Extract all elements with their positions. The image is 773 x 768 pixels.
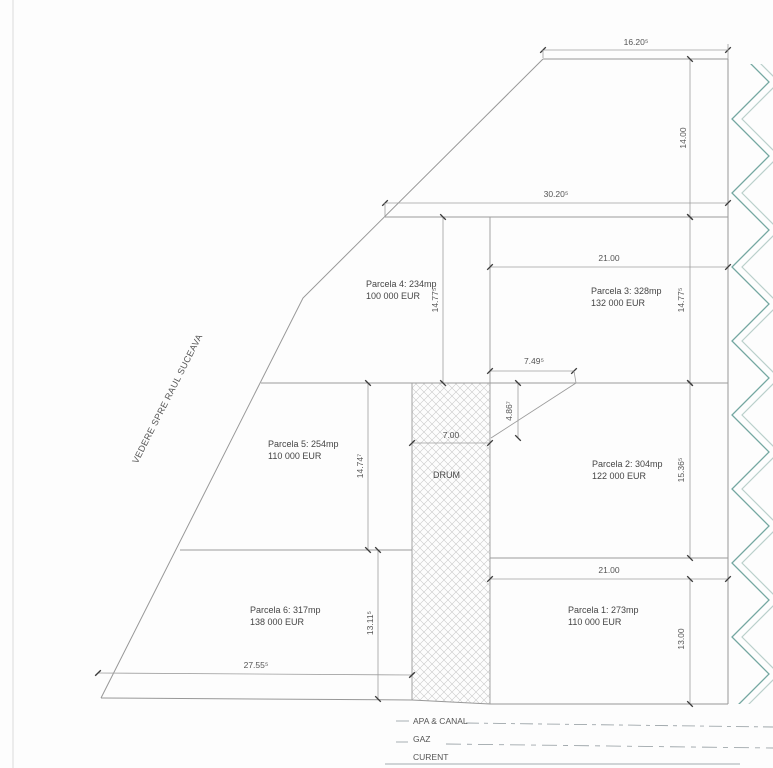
dim-p1-width: 21.00 [598,565,620,575]
paper-background [0,0,773,768]
parcel-6-name: Parcela 6: 317mp [250,605,321,615]
parcel-1-name: Parcela 1: 273mp [568,605,639,615]
dim-p6-height: 13.11⁵ [365,611,375,635]
dim-access-height: 4.86⁷ [504,401,514,421]
curent-label: CURENT [413,752,448,762]
site-plan-drawing: 16.20⁵ 14.00 30.20⁵ 21.00 14.77⁵ 14.77⁵ … [0,0,773,768]
parcel-6-price: 138 000 EUR [250,617,305,627]
dim-p4-height: 14.77⁵ [430,288,440,313]
cadastral-plan-page: 16.20⁵ 14.00 30.20⁵ 21.00 14.77⁵ 14.77⁵ … [0,0,773,768]
apa-canal-label: APA & CANAL [413,716,468,726]
parcel-4-price: 100 000 EUR [366,291,421,301]
dim-p1-height: 13.00 [676,628,686,650]
dim-road-width: 7.00 [443,430,460,440]
dim-p3-width: 21.00 [598,253,620,263]
parcel-2-price: 122 000 EUR [592,471,647,481]
parcel-3-name: Parcela 3: 328mp [591,286,662,296]
parcel-3-price: 132 000 EUR [591,298,646,308]
dim-top-height: 14.00 [678,127,688,149]
road-label: DRUM [433,470,460,480]
parcel-5-name: Parcela 5: 254mp [268,439,339,449]
parcel-1-price: 110 000 EUR [568,617,622,627]
dim-strip-width: 30.20⁵ [544,189,569,199]
dim-p5-height: 14.74⁷ [355,454,365,478]
parcel-4-name: Parcela 4: 234mp [366,279,437,289]
gaz-label: GAZ [413,734,430,744]
dim-p2-height: 15.36⁵ [676,458,686,483]
dim-p3-height: 14.77⁵ [676,288,686,313]
parcel-5-price: 110 000 EUR [268,451,322,461]
neighbour-hatch-pattern [729,64,773,704]
dim-p6-width: 27.55⁵ [244,660,269,670]
dim-top-width: 16.20⁵ [624,37,649,47]
dim-access-width: 7.49⁵ [524,356,544,366]
parcel-2-name: Parcela 2: 304mp [592,459,663,469]
